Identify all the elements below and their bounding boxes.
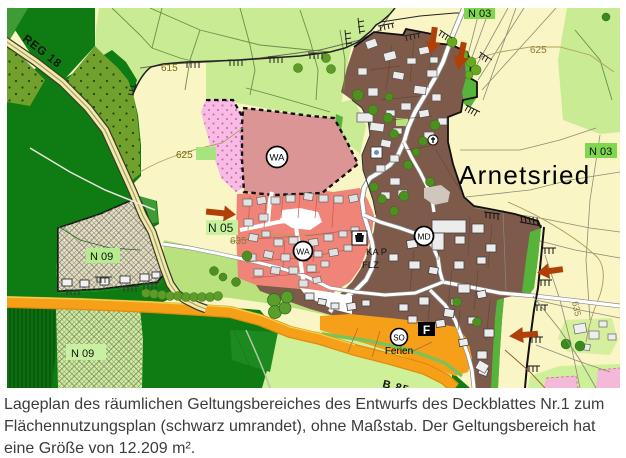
svg-text:F: F [423,323,430,337]
svg-text:WA: WA [270,153,286,164]
svg-text:615: 615 [161,63,178,74]
svg-text:SO: SO [393,334,405,343]
svg-text:FLZ: FLZ [362,260,379,271]
svg-text:N 03: N 03 [468,8,491,20]
svg-text:KA P: KA P [366,247,387,258]
svg-text:625: 625 [176,150,193,161]
svg-text:N 03: N 03 [589,146,612,158]
svg-text:N 09: N 09 [71,348,94,360]
svg-text:WA: WA [296,247,310,257]
svg-text:Arnetsried: Arnetsried [459,160,591,190]
svg-text:N 05: N 05 [208,221,234,235]
svg-text:625: 625 [530,45,547,56]
svg-text:Ferien: Ferien [385,346,413,357]
svg-text:635: 635 [230,236,247,247]
svg-text:N 09: N 09 [90,251,113,263]
svg-text:MD: MD [417,232,430,242]
